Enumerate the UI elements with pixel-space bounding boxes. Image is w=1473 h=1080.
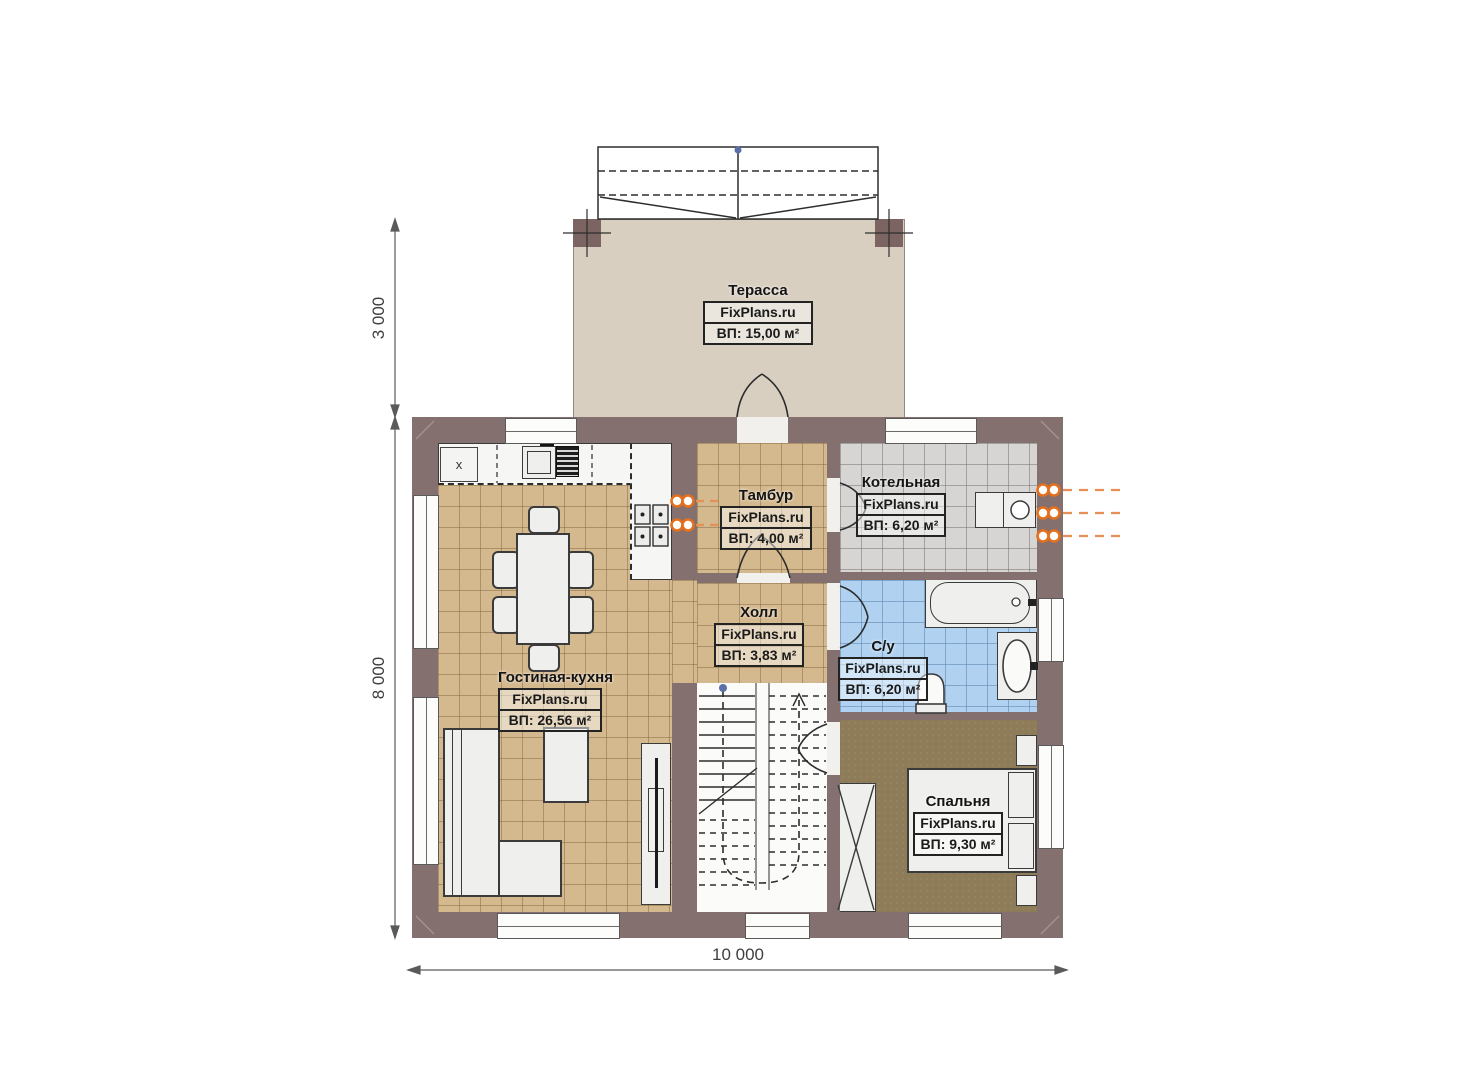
watermark: FixPlans.ru: [840, 659, 926, 678]
watermark: FixPlans.ru: [705, 303, 811, 322]
room-label-bathroom: С/у FixPlans.ru ВП: 6,20 м²: [838, 638, 928, 701]
room-label-tambour: Тамбур FixPlans.ru ВП: 4,00 м²: [720, 487, 812, 550]
terrace-steps: [598, 147, 878, 220]
washbasin: [1003, 640, 1038, 692]
room-area-living: ВП: 26,56 м²: [500, 709, 600, 730]
dimension-house-width: 10 000: [703, 945, 773, 965]
stair-treads-dashed-right: [769, 696, 826, 865]
utility-symbols-right: [1038, 485, 1121, 542]
room-area-terrace: ВП: 15,00 м²: [705, 322, 811, 343]
room-label-bedroom: Спальня FixPlans.ru ВП: 9,30 м²: [913, 793, 1003, 856]
bathtub-drain: [1012, 598, 1036, 606]
room-area-tambour: ВП: 4,00 м²: [722, 527, 810, 548]
stair-start-marker: [719, 684, 727, 692]
room-name-bedroom: Спальня: [913, 793, 1003, 810]
room-name-terrace: Терасса: [703, 282, 813, 299]
door-arcs: [737, 374, 868, 773]
watermark: FixPlans.ru: [500, 690, 600, 709]
counter-divisions: [497, 445, 592, 483]
watermark: FixPlans.ru: [722, 508, 810, 527]
room-area-bathroom: ВП: 6,20 м²: [840, 678, 926, 699]
room-area-boiler: ВП: 6,20 м²: [858, 514, 944, 535]
terrace-door-arc: [737, 374, 788, 417]
stove-burners: [635, 505, 668, 546]
stair-break-line: [699, 768, 757, 814]
boiler-dial: [1011, 501, 1029, 519]
watermark: FixPlans.ru: [716, 625, 802, 644]
room-label-terrace: Терасса FixPlans.ru ВП: 15,00 м²: [703, 282, 813, 345]
watermark: FixPlans.ru: [915, 814, 1001, 833]
room-label-boiler: Котельная FixPlans.ru ВП: 6,20 м²: [856, 474, 946, 537]
room-label-living: Гостиная-кухня FixPlans.ru ВП: 26,56 м²: [498, 669, 602, 732]
room-area-bedroom: ВП: 9,30 м²: [915, 833, 1001, 854]
stair-treads-dashed-left: [699, 820, 755, 885]
room-name-living: Гостиная-кухня: [498, 669, 602, 686]
room-name-hall: Холл: [714, 604, 804, 621]
room-name-bathroom: С/у: [838, 638, 928, 655]
dimension-house-depth: 8 000: [369, 651, 389, 705]
floor-plan: x: [0, 0, 1473, 1080]
staircase: [699, 683, 826, 890]
watermark: FixPlans.ru: [858, 495, 944, 514]
stair-stringers: [756, 683, 769, 890]
stair-treads-solid: [699, 696, 755, 800]
dimension-terrace-depth: 3 000: [369, 291, 389, 345]
room-label-hall: Холл FixPlans.ru ВП: 3,83 м²: [714, 604, 804, 667]
utility-symbols-left: [672, 496, 719, 531]
wardrobe-x-lines: [838, 785, 874, 910]
room-area-hall: ВП: 3,83 м²: [716, 644, 802, 665]
room-name-tambour: Тамбур: [720, 487, 812, 504]
room-name-boiler: Котельная: [856, 474, 946, 491]
